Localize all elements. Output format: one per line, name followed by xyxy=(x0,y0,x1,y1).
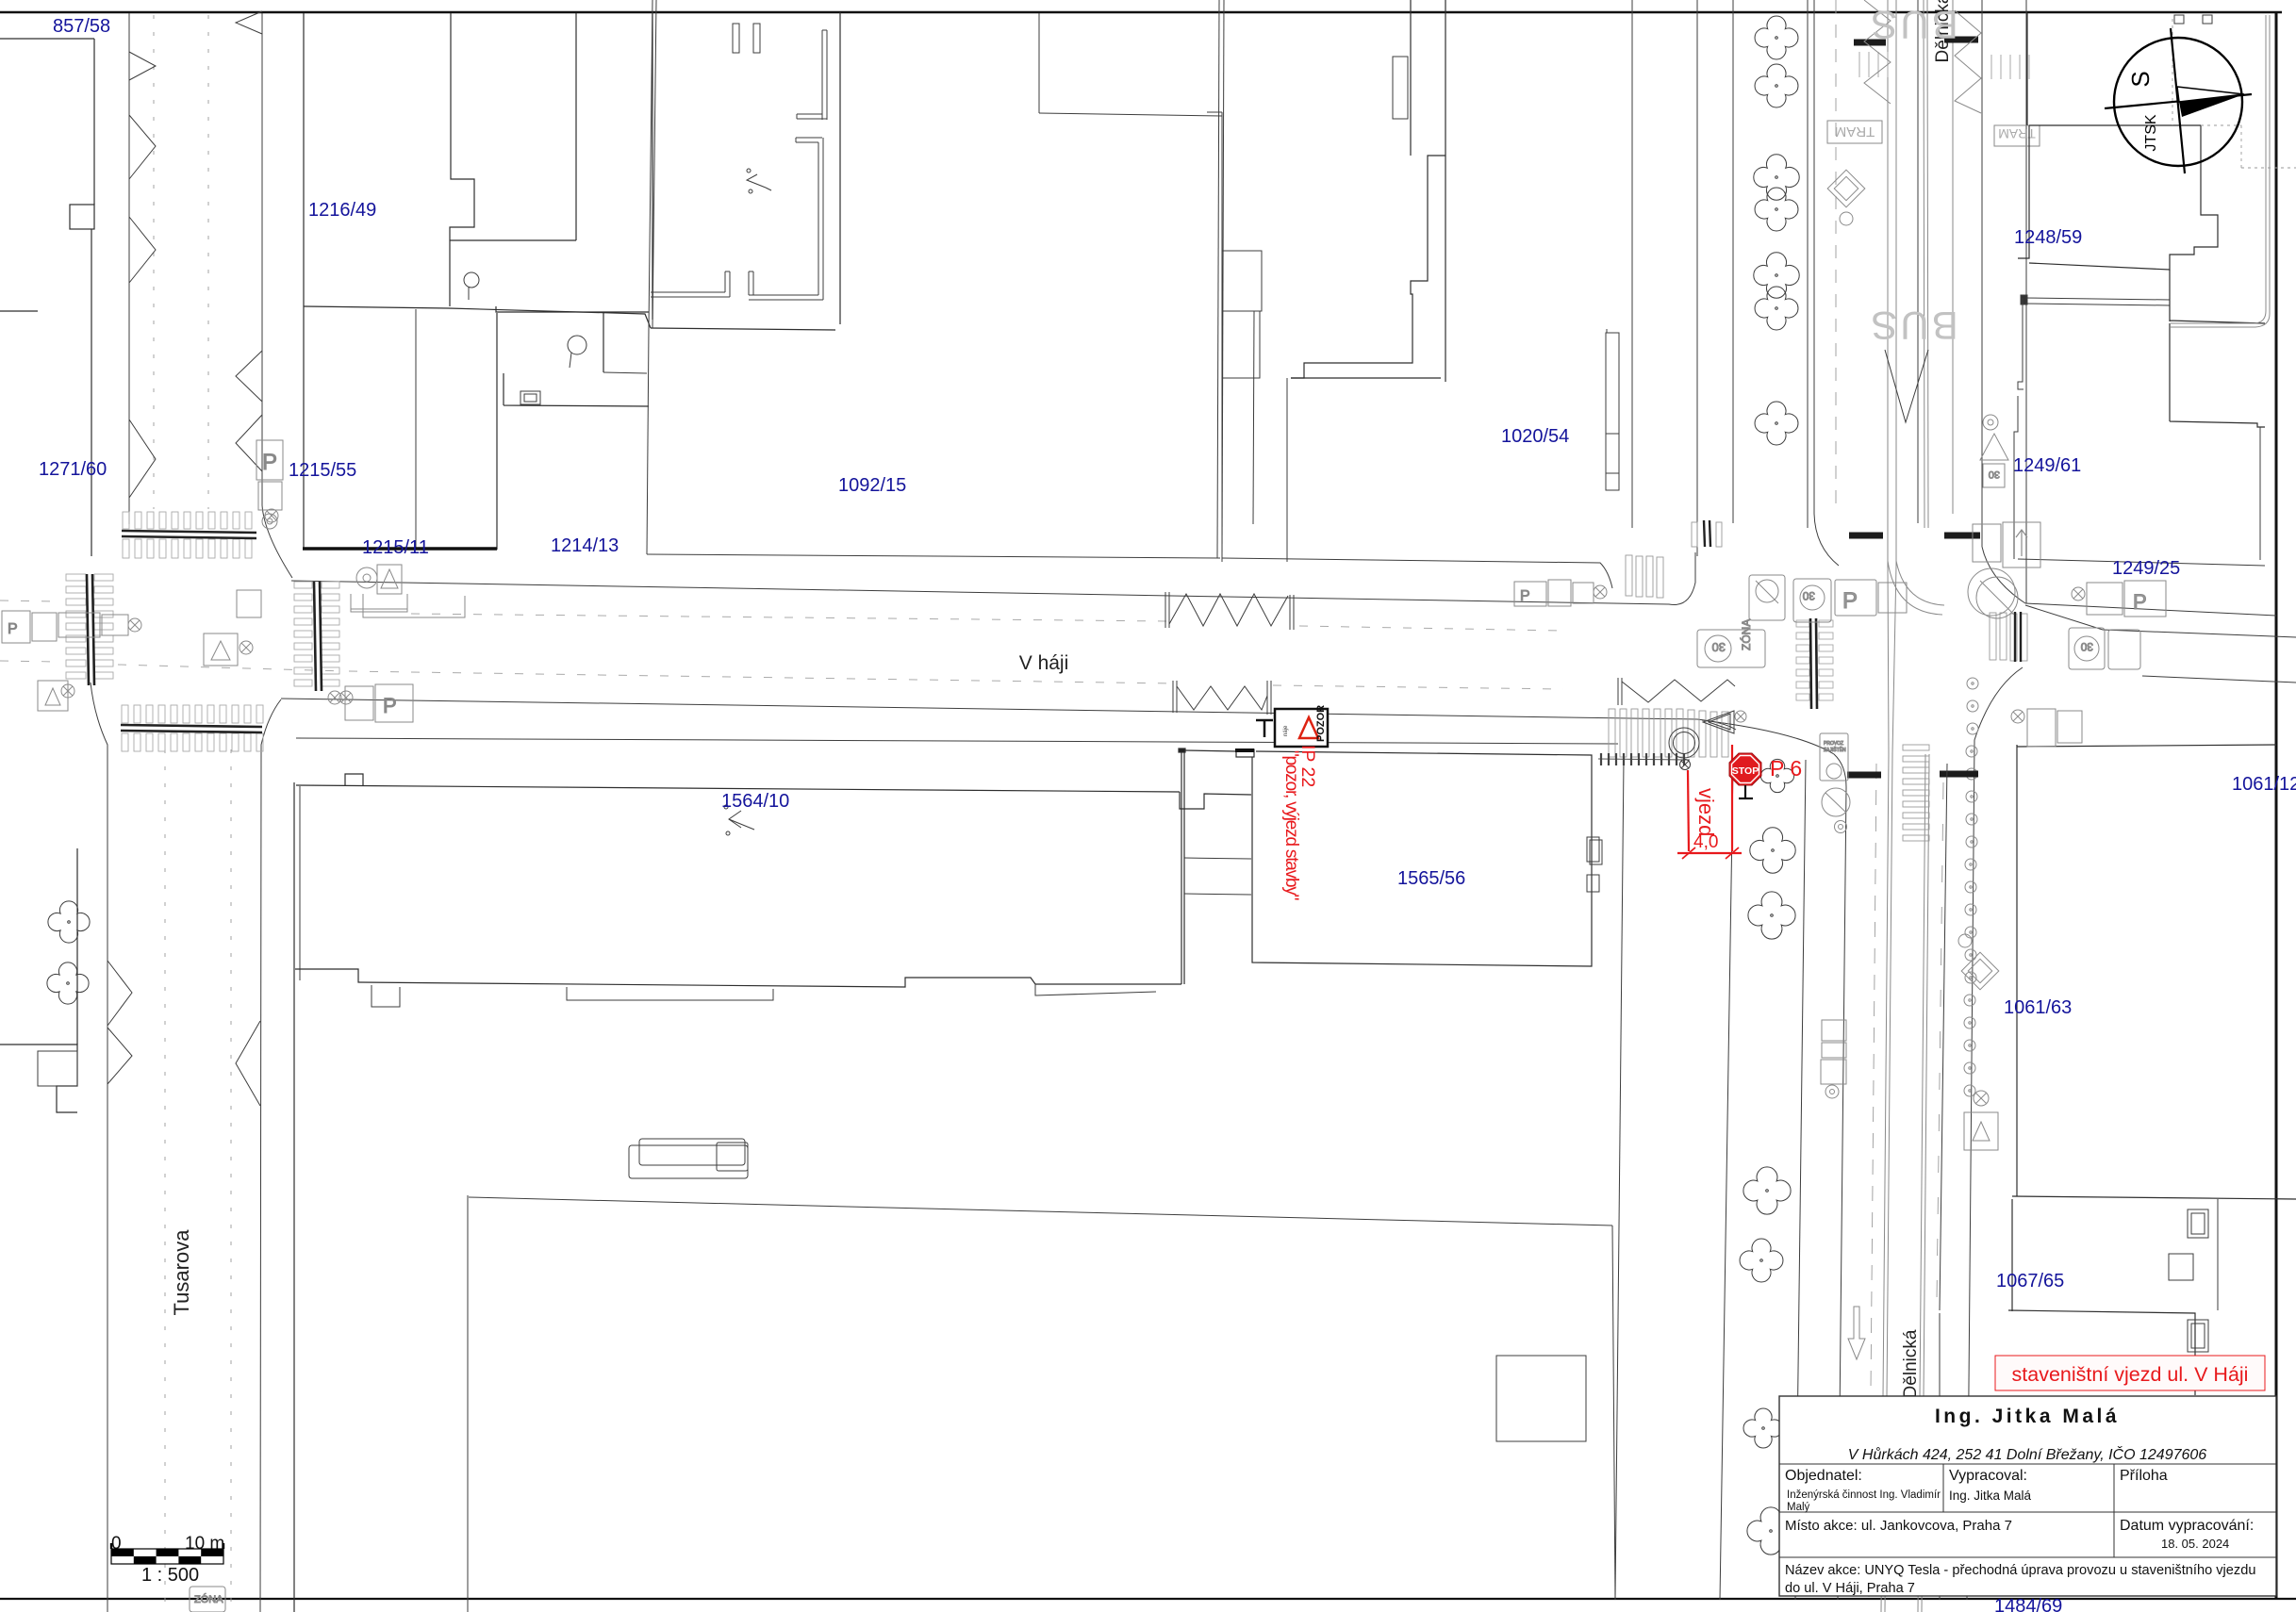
svg-text:Datum vypracování:: Datum vypracování: xyxy=(2120,1518,2254,1534)
svg-text:P: P xyxy=(8,621,18,637)
svg-text:30: 30 xyxy=(2080,640,2093,653)
svg-text:Objednatel:: Objednatel: xyxy=(1785,1468,1862,1484)
svg-text:Název akce: UNYQ Tesla - přech: Název akce: UNYQ Tesla - přechodná úprav… xyxy=(1785,1563,2255,1578)
svg-text:vjezd: vjezd xyxy=(1694,788,1718,836)
svg-text:ZÓNA: ZÓNA xyxy=(194,1593,223,1605)
svg-text:1067/65: 1067/65 xyxy=(1996,1271,2064,1291)
svg-text:Místo akce: ul. Jankovcova, P: Místo akce: ul. Jankovcova, Praha 7 xyxy=(1785,1518,2012,1534)
svg-text:857/58: 857/58 xyxy=(53,16,110,37)
svg-text:"pozor, výjezd stavby": "pozor, výjezd stavby" xyxy=(1281,750,1301,900)
svg-text:V Hůrkách 424, 252 41 Dolní Bř: V Hůrkách 424, 252 41 Dolní Břežany, IČO… xyxy=(1848,1445,2206,1463)
svg-text:Ing. Jitka Malá: Ing. Jitka Malá xyxy=(1935,1406,2120,1427)
svg-text:1215/55: 1215/55 xyxy=(289,460,356,481)
svg-text:30: 30 xyxy=(1712,640,1726,654)
svg-text:ZAJIŠTĚN: ZAJIŠTĚN xyxy=(1824,746,1846,753)
svg-text:Dělnická: Dělnická xyxy=(1901,1329,1921,1398)
svg-text:JTSK: JTSK xyxy=(2143,114,2159,151)
svg-text:1020/54: 1020/54 xyxy=(1501,426,1569,447)
svg-text:1248/59: 1248/59 xyxy=(2014,227,2082,248)
svg-text:1271/60: 1271/60 xyxy=(39,459,107,480)
svg-text:TRAM: TRAM xyxy=(1835,123,1875,140)
svg-text:do ul. V Háji, Praha 7: do ul. V Háji, Praha 7 xyxy=(1785,1581,1915,1596)
svg-text:30: 30 xyxy=(1989,469,2000,480)
svg-text:1216/49: 1216/49 xyxy=(308,200,376,221)
svg-text:1 : 500: 1 : 500 xyxy=(141,1565,199,1586)
svg-text:Tusarova: Tusarova xyxy=(170,1229,193,1316)
svg-text:Malý: Malý xyxy=(1787,1502,1810,1513)
svg-text:STOP: STOP xyxy=(1732,765,1759,777)
svg-text:S: S xyxy=(2126,71,2155,87)
svg-text:1061/12: 1061/12 xyxy=(2232,774,2296,795)
svg-text:P 6: P 6 xyxy=(1770,756,1802,781)
svg-text:1565/56: 1565/56 xyxy=(1397,868,1465,889)
svg-text:1061/63: 1061/63 xyxy=(2004,997,2072,1018)
svg-text:1214/13: 1214/13 xyxy=(551,535,619,556)
svg-text:1249/25: 1249/25 xyxy=(2112,558,2180,579)
svg-text:18. 05. 2024: 18. 05. 2024 xyxy=(2161,1537,2229,1551)
svg-text:Vypracoval:: Vypracoval: xyxy=(1949,1468,2027,1484)
svg-text:náje: náje xyxy=(1283,725,1289,736)
svg-text:Příloha: Příloha xyxy=(2120,1468,2168,1484)
svg-text:1215/11: 1215/11 xyxy=(362,537,429,558)
svg-text:ZÓNA: ZÓNA xyxy=(1739,619,1753,650)
svg-text:staveništní vjezd ul. V Háji: staveništní vjezd ul. V Háji xyxy=(2012,1363,2249,1386)
svg-text:1249/61: 1249/61 xyxy=(2013,455,2081,476)
svg-text:PROVOZ: PROVOZ xyxy=(1824,741,1843,747)
svg-text:POZOR: POZOR xyxy=(1315,705,1327,742)
svg-text:BUS: BUS xyxy=(1868,304,1957,348)
svg-text:1484/69: 1484/69 xyxy=(1994,1596,2062,1612)
svg-text:V háji: V háji xyxy=(1019,652,1069,674)
svg-text:P: P xyxy=(383,694,397,717)
svg-text:P: P xyxy=(2133,590,2147,614)
svg-text:P: P xyxy=(1520,588,1530,604)
svg-text:4,0: 4,0 xyxy=(1693,832,1718,852)
svg-text:P: P xyxy=(1842,588,1858,614)
svg-text:30: 30 xyxy=(1802,589,1815,602)
svg-text:Inženýrská činnost Ing. Vladim: Inženýrská činnost Ing. Vladimír xyxy=(1787,1489,1941,1501)
svg-text:1092/15: 1092/15 xyxy=(838,475,906,496)
svg-text:Ing. Jitka Malá: Ing. Jitka Malá xyxy=(1949,1489,2032,1503)
svg-text:P: P xyxy=(262,450,277,475)
svg-text:TRAM: TRAM xyxy=(1998,126,2036,141)
svg-text:1564/10: 1564/10 xyxy=(721,791,789,812)
svg-text:BUS: BUS xyxy=(1868,3,1957,47)
